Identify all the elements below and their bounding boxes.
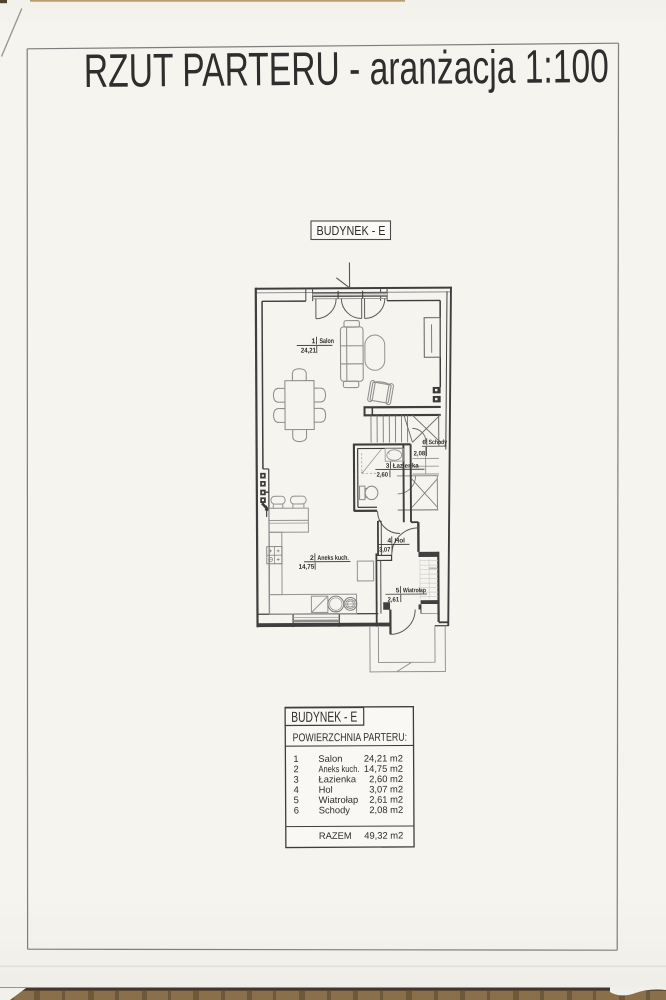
svg-text:2,61: 2,61 [388,597,400,604]
svg-text:2,60: 2,60 [377,472,389,479]
svg-text:RAZEM: RAZEM [319,830,352,841]
svg-text:5: 5 [396,587,400,594]
svg-text:1: 1 [311,338,315,345]
svg-text:Schody: Schody [429,439,448,446]
svg-text:Salon: Salon [319,338,334,345]
svg-text:24,21: 24,21 [301,348,316,355]
svg-text:Hol: Hol [394,538,405,545]
svg-text:Wiatrołap: Wiatrołap [403,587,426,594]
svg-text:49,32 m2: 49,32 m2 [364,830,403,841]
svg-text:3: 3 [386,463,390,470]
svg-text:POWIERZCHNIA PARTERU:: POWIERZCHNIA PARTERU: [293,732,408,745]
svg-text:2,08 m2: 2,08 m2 [369,804,403,815]
svg-text:BUDYNEK - E: BUDYNEK - E [291,710,357,726]
svg-text:Schody: Schody [319,804,351,815]
svg-text:4: 4 [387,538,391,545]
svg-text:14,75: 14,75 [299,564,315,571]
svg-text:Aneks kuch.: Aneks kuch. [317,555,349,562]
svg-text:3,07: 3,07 [379,547,391,554]
svg-text:Łazienka: Łazienka [393,463,419,470]
svg-text:2: 2 [310,555,314,562]
svg-text:6: 6 [422,439,426,446]
svg-text:BUDYNEK - E: BUDYNEK - E [317,223,386,238]
svg-text:RZUT PARTERU - aranżacja 1:10: RZUT PARTERU - aranżacja 1:100 [84,39,609,97]
svg-text:6: 6 [294,804,299,815]
svg-text:2,08: 2,08 [414,450,426,457]
